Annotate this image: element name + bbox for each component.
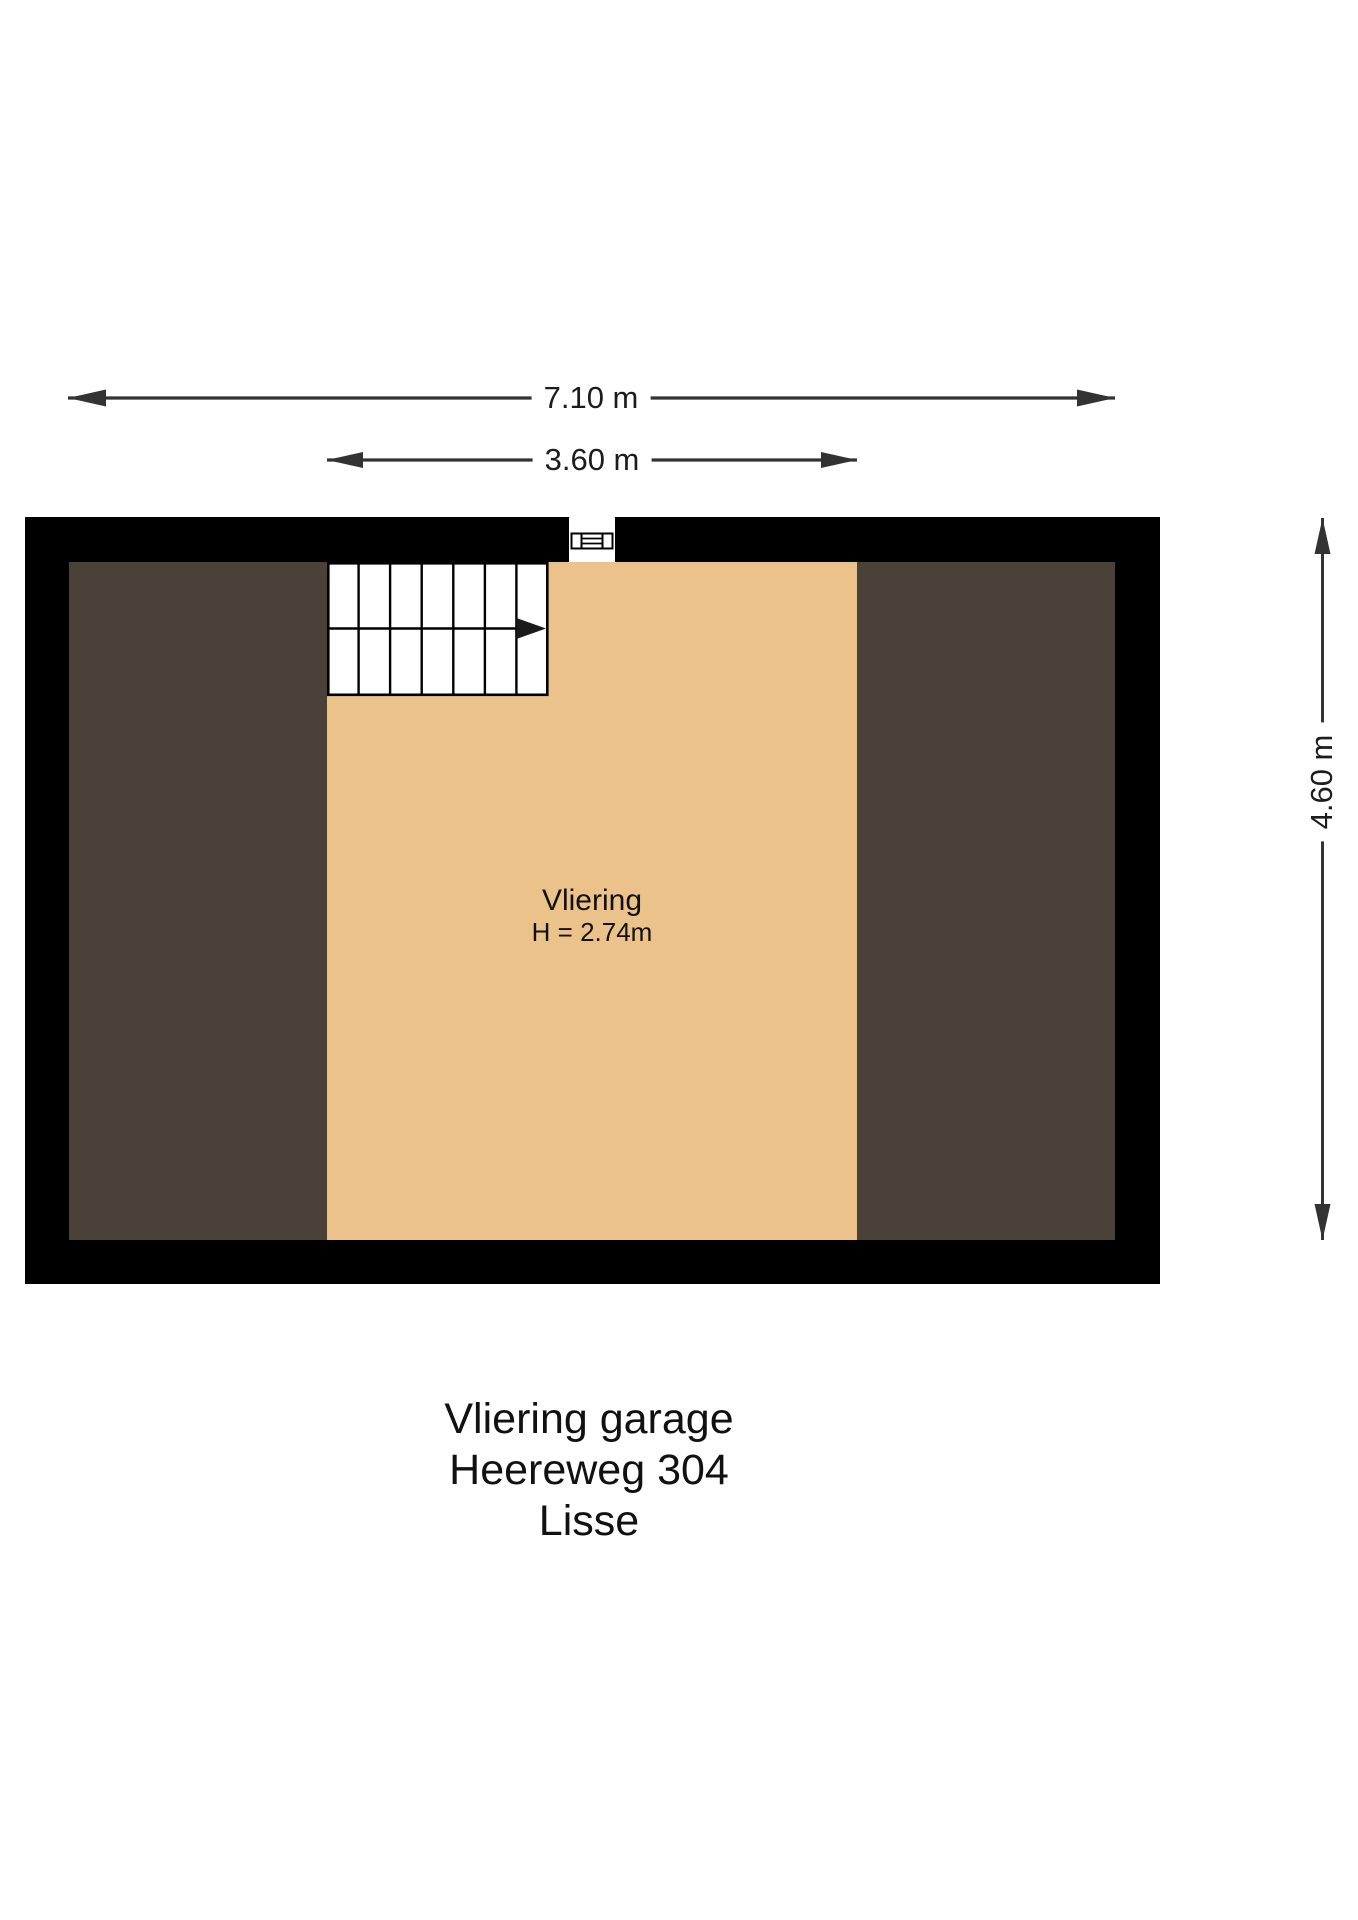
hatch-window-icon bbox=[569, 517, 615, 562]
under-roof-area-right bbox=[857, 562, 1115, 1240]
arrowhead-up-icon bbox=[1315, 518, 1331, 554]
arrowhead-right-icon bbox=[1077, 390, 1115, 407]
arrowhead-left-icon bbox=[327, 452, 363, 468]
room-label: Vliering H = 2.74m bbox=[532, 884, 653, 947]
caption-address: Heereweg 304 bbox=[444, 1445, 733, 1496]
plan-caption: Vliering garage Heereweg 304 Lisse bbox=[444, 1394, 733, 1547]
staircase bbox=[327, 562, 549, 697]
room-name: Vliering bbox=[532, 884, 653, 917]
dimension-label-total-depth: 4.60 m bbox=[1303, 723, 1341, 842]
arrowhead-right-icon bbox=[821, 452, 857, 468]
caption-title: Vliering garage bbox=[444, 1394, 733, 1445]
room-height-note: H = 2.74m bbox=[532, 917, 653, 947]
under-roof-area-left bbox=[69, 562, 327, 1240]
dimension-label-vliering-width: 3.60 m bbox=[533, 441, 652, 479]
arrowhead-down-icon bbox=[1315, 1204, 1331, 1240]
caption-city: Lisse bbox=[444, 1496, 733, 1547]
arrowhead-left-icon bbox=[68, 390, 106, 407]
dimension-label-total-width: 7.10 m bbox=[532, 379, 651, 417]
floorplan-page: 7.10 m 3.60 m 4.60 m bbox=[0, 0, 1358, 1920]
